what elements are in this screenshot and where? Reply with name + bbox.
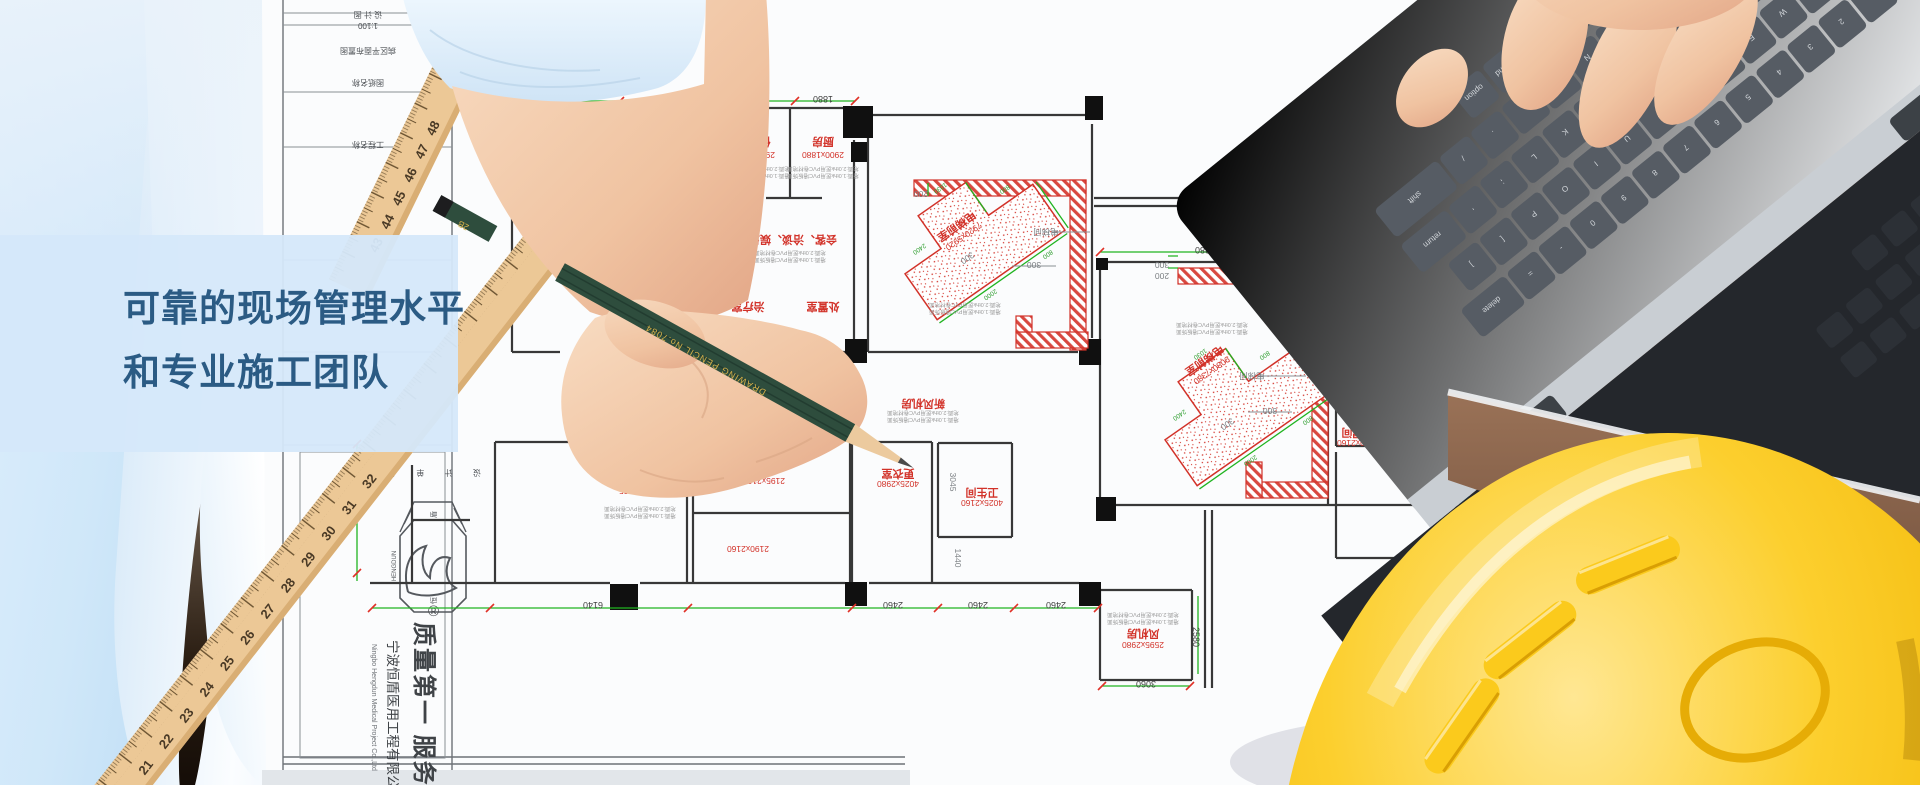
svg-text:3060: 3060 [1136, 679, 1156, 689]
svg-text:2190x2160: 2190x2160 [727, 544, 769, 554]
svg-text:3045: 3045 [948, 473, 958, 492]
project-name-row: 工程名称 [352, 140, 384, 150]
svg-text:4025x2160: 4025x2160 [961, 498, 1003, 508]
svg-text:墙面:1.0thk医用PVC墙板饰面: 墙面:1.0thk医用PVC墙板饰面 [787, 172, 859, 180]
svg-text:地面:2.0thk医用PVC卷材地面: 地面:2.0thk医用PVC卷材地面 [1107, 611, 1179, 619]
svg-text:地面:2.0thk医用PVC卷材地面: 地面:2.0thk医用PVC卷材地面 [887, 409, 959, 417]
svg-text:200: 200 [1155, 271, 1169, 281]
svg-text:墙面:1.0thk医用PVC墙板饰面: 墙面:1.0thk医用PVC墙板饰面 [1107, 618, 1179, 626]
svg-text:墙面:1.0thk医用PVC墙板饰面: 墙面:1.0thk医用PVC墙板饰面 [604, 512, 676, 520]
svg-text:墙面:1.0thk医用PVC墙板饰面: 墙面:1.0thk医用PVC墙板饰面 [929, 308, 1001, 316]
svg-text:厨房: 厨房 [812, 135, 834, 149]
company-name-en: Ningbo Hengdun Medical Project Co.,Ltd [370, 644, 377, 771]
svg-text:2460: 2460 [883, 600, 903, 610]
svg-text:地面:2.0thk医用PVC卷材地面: 地面:2.0thk医用PVC卷材地面 [929, 301, 1001, 309]
svg-text:地面:2.0thk医用PVC卷材地面: 地面:2.0thk医用PVC卷材地面 [1176, 321, 1248, 329]
svg-text:地面:2.0thk医用PVC卷材地面: 地面:2.0thk医用PVC卷材地面 [787, 165, 859, 173]
svg-text:电梯间: 电梯间 [1239, 371, 1265, 381]
svg-text:风机房: 风机房 [1127, 627, 1160, 641]
svg-text:墙面:1.0thk医用PVC墙板饰面: 墙面:1.0thk医用PVC墙板饰面 [887, 416, 959, 424]
svg-text:200: 200 [914, 189, 928, 199]
sheet-name-row: 图纸名称 [352, 78, 384, 88]
logo-banner-text: HENGDUN [392, 551, 398, 581]
svg-text:电梯间: 电梯间 [1033, 227, 1059, 237]
registered-mark: ® [428, 603, 439, 620]
svg-text:墙面:1.0thk医用PVC墙板饰面: 墙面:1.0thk医用PVC墙板饰面 [754, 256, 826, 264]
svg-text:300: 300 [1027, 260, 1041, 270]
svg-text:300: 300 [1263, 406, 1277, 416]
svg-text:4025x2980: 4025x2980 [877, 479, 919, 489]
title-row: 设 计 图 [354, 10, 382, 20]
svg-text:2580: 2580 [1191, 627, 1201, 647]
svg-text:2460: 2460 [1046, 600, 1066, 610]
headline-line2: 和专业施工团队 [123, 341, 458, 405]
headline-line1: 可靠的现场管理水平 [123, 277, 458, 341]
svg-text:地面:2.0thk医用PVC卷材地面: 地面:2.0thk医用PVC卷材地面 [604, 505, 676, 513]
headline: 可靠的现场管理水平 和专业施工团队 [0, 235, 458, 405]
scale-row: 1:100 [357, 21, 378, 30]
svg-text:卫生间: 卫生间 [966, 486, 999, 500]
svg-text:6140: 6140 [583, 600, 603, 610]
company-name-cn: 宁波恒盾医用工程有限公司 [385, 640, 401, 785]
logo-char-right: 盾 [430, 511, 438, 518]
svg-text:处置室: 处置室 [807, 300, 841, 314]
svg-text:2900x1880: 2900x1880 [802, 150, 844, 160]
svg-text:更衣室: 更衣室 [882, 467, 915, 481]
overlay-band: 可靠的现场管理水平 和专业施工团队 [0, 235, 458, 452]
svg-text:新风机房: 新风机房 [901, 397, 945, 411]
svg-text:1880: 1880 [813, 94, 833, 104]
svg-text:墙面:1.0thk医用PVC墙板饰面: 墙面:1.0thk医用PVC墙板饰面 [1176, 328, 1248, 336]
hero-banner: 设 计 图 1:100 病区平面布置图 图纸名称 工程名称 设 计 单 位 HE… [0, 0, 1920, 785]
svg-text:会客、洽谈、娱乐: 会客、洽谈、娱乐 [749, 233, 837, 247]
svg-text:300: 300 [1155, 260, 1169, 270]
svg-text:1440: 1440 [953, 549, 963, 568]
svg-text:地面:2.0thk医用PVC卷材地面: 地面:2.0thk医用PVC卷材地面 [754, 249, 826, 257]
desk-edge-strip [262, 770, 910, 785]
svg-text:2595x2980: 2595x2980 [1122, 640, 1164, 650]
quality-slogan: 质量第一 服务至上 [410, 622, 438, 785]
drawing-title-row: 病区平面布置图 [340, 46, 396, 56]
svg-text:2460: 2460 [968, 600, 988, 610]
